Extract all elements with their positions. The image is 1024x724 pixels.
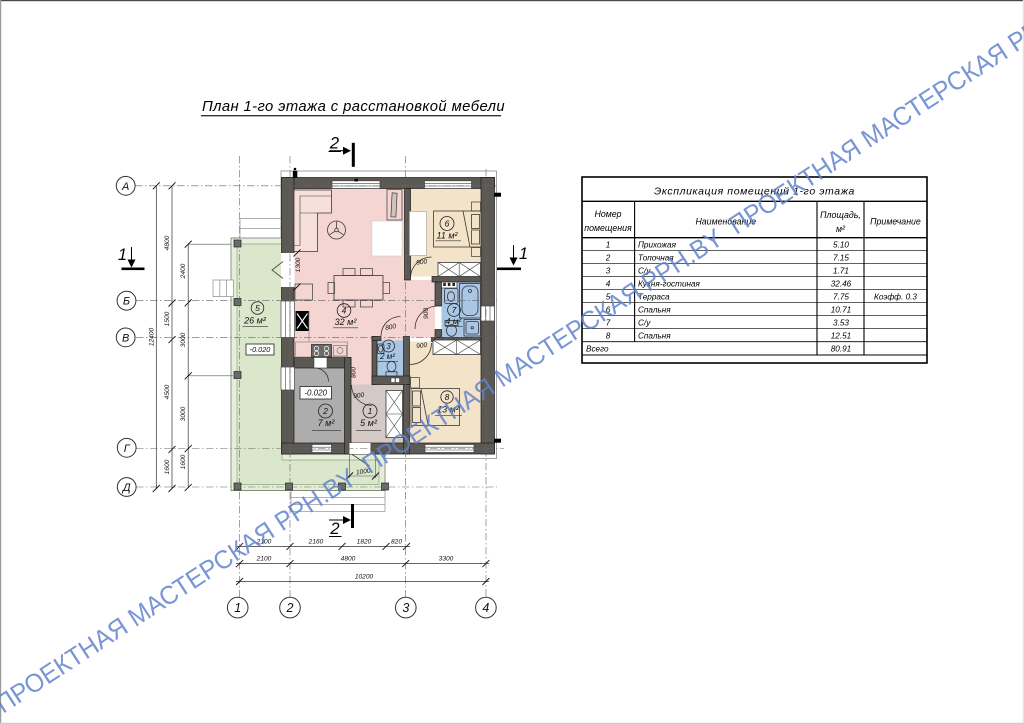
svg-text:800: 800 (351, 367, 358, 378)
svg-text:3: 3 (606, 267, 611, 276)
svg-text:4500: 4500 (164, 384, 171, 399)
svg-text:6: 6 (445, 219, 450, 229)
svg-text:2160: 2160 (308, 539, 324, 546)
svg-text:8: 8 (606, 332, 611, 341)
svg-text:Примечание: Примечание (870, 217, 921, 227)
svg-text:1: 1 (519, 245, 528, 263)
svg-text:12.51: 12.51 (831, 332, 852, 341)
svg-text:4800: 4800 (164, 235, 171, 250)
svg-text:32.46: 32.46 (831, 280, 852, 289)
svg-text:3: 3 (386, 342, 391, 351)
svg-text:1600: 1600 (180, 454, 187, 469)
svg-text:4 м²: 4 м² (446, 316, 463, 326)
svg-text:5 м²: 5 м² (360, 418, 378, 428)
svg-text:7.75: 7.75 (833, 293, 849, 302)
svg-text:1: 1 (368, 406, 373, 416)
svg-text:4: 4 (342, 306, 347, 316)
svg-text:Г: Г (124, 443, 131, 455)
svg-text:3000: 3000 (180, 406, 187, 421)
svg-text:2: 2 (329, 135, 339, 153)
svg-text:Спальня: Спальня (638, 306, 671, 315)
svg-text:С/у: С/у (638, 319, 651, 328)
svg-text:900: 900 (423, 308, 430, 319)
svg-text:5: 5 (255, 303, 260, 313)
svg-text:2: 2 (605, 254, 611, 263)
svg-text:1: 1 (118, 246, 127, 264)
svg-text:-0.020: -0.020 (250, 345, 271, 354)
svg-text:12400: 12400 (149, 328, 156, 347)
svg-text:1820: 1820 (357, 539, 372, 546)
svg-text:3000: 3000 (180, 332, 187, 347)
svg-text:помещения: помещения (584, 223, 632, 233)
svg-text:2400: 2400 (180, 263, 187, 279)
svg-text:-0.020: -0.020 (304, 388, 327, 397)
svg-text:Коэфф. 0.3: Коэфф. 0.3 (874, 293, 917, 302)
svg-text:3: 3 (402, 601, 409, 615)
svg-text:26 м²: 26 м² (243, 316, 267, 326)
svg-text:10.71: 10.71 (831, 306, 852, 315)
svg-text:7: 7 (452, 305, 457, 315)
svg-text:4: 4 (606, 280, 611, 289)
svg-text:5.10: 5.10 (833, 241, 849, 250)
svg-text:7.15: 7.15 (833, 254, 849, 263)
svg-text:2 м²: 2 м² (379, 352, 395, 361)
svg-text:2: 2 (322, 406, 328, 416)
svg-text:Спальня: Спальня (638, 332, 671, 341)
svg-text:В: В (122, 332, 129, 344)
svg-text:2: 2 (286, 601, 294, 615)
svg-text:Всего: Всего (586, 345, 609, 354)
svg-text:4800: 4800 (341, 556, 356, 563)
svg-text:7 м²: 7 м² (318, 418, 336, 428)
svg-text:11 м²: 11 м² (436, 231, 458, 241)
svg-text:32 м²: 32 м² (335, 317, 358, 327)
svg-text:1: 1 (234, 601, 241, 615)
svg-text:1.71: 1.71 (833, 267, 849, 276)
svg-text:2: 2 (329, 520, 339, 538)
svg-text:1500: 1500 (164, 311, 171, 326)
svg-text:А: А (121, 181, 129, 193)
svg-text:3300: 3300 (439, 556, 454, 563)
svg-text:4: 4 (482, 601, 489, 615)
svg-text:План 1-го этажа с расстановкой: План 1-го этажа с расстановкой мебели (202, 99, 505, 115)
svg-text:10200: 10200 (355, 574, 374, 581)
svg-text:Б: Б (123, 296, 130, 308)
svg-text:1: 1 (606, 241, 611, 250)
svg-text:80.91: 80.91 (831, 345, 852, 354)
svg-text:Д: Д (121, 482, 131, 494)
svg-text:2100: 2100 (256, 556, 272, 563)
svg-text:м²: м² (836, 224, 846, 234)
svg-text:3.53: 3.53 (833, 319, 849, 328)
svg-text:1600: 1600 (164, 459, 171, 474)
svg-text:Номер: Номер (594, 209, 621, 219)
svg-text:820: 820 (391, 539, 402, 546)
svg-text:1300: 1300 (295, 257, 302, 272)
svg-text:Площадь,: Площадь, (820, 210, 861, 220)
